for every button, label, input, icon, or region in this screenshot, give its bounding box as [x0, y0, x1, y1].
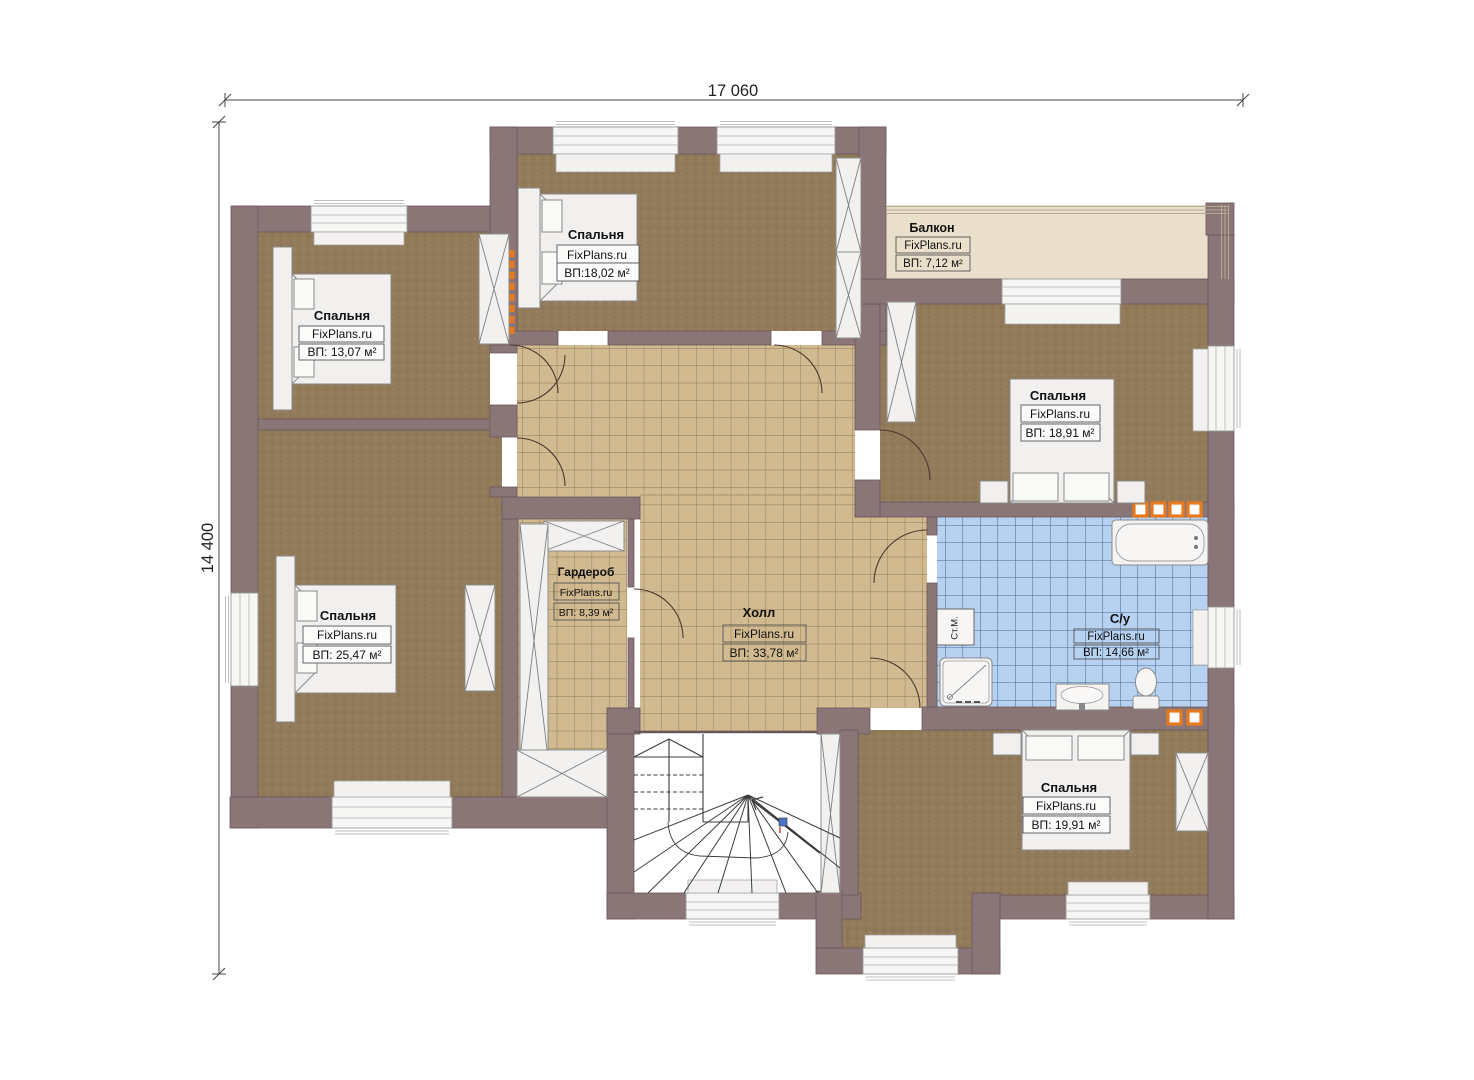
svg-text:14 400: 14 400 [199, 523, 217, 573]
svg-text:FixPlans.ru: FixPlans.ru [312, 327, 372, 341]
svg-text:Спальня: Спальня [1030, 388, 1086, 403]
svg-text:FixPlans.ru: FixPlans.ru [560, 587, 613, 599]
svg-text:Балкон: Балкон [909, 221, 954, 235]
svg-text:Спальня: Спальня [314, 308, 370, 323]
svg-text:ВП: 25,47 м²: ВП: 25,47 м² [313, 648, 382, 662]
svg-text:FixPlans.ru: FixPlans.ru [1030, 407, 1090, 421]
svg-text:ВП: 33,78 м²: ВП: 33,78 м² [730, 646, 799, 660]
svg-text:ВП: 18,91 м²: ВП: 18,91 м² [1026, 426, 1095, 440]
svg-text:FixPlans.ru: FixPlans.ru [904, 240, 962, 252]
svg-text:ВП: 7,12 м²: ВП: 7,12 м² [903, 258, 963, 270]
svg-text:ВП: 8,39 м²: ВП: 8,39 м² [559, 607, 614, 619]
svg-text:Холл: Холл [743, 605, 776, 620]
svg-text:ВП: 19,91 м²: ВП: 19,91 м² [1032, 818, 1101, 832]
svg-text:ВП:18,02 м²: ВП:18,02 м² [564, 266, 630, 280]
svg-text:Спальня: Спальня [1041, 780, 1097, 795]
svg-text:ВП: 14,66 м²: ВП: 14,66 м² [1083, 647, 1149, 659]
svg-text:С/у: С/у [1110, 611, 1131, 626]
svg-text:FixPlans.ru: FixPlans.ru [1087, 631, 1145, 643]
svg-text:Спальня: Спальня [320, 608, 376, 623]
svg-text:FixPlans.ru: FixPlans.ru [317, 628, 377, 642]
svg-text:ВП: 13,07 м²: ВП: 13,07 м² [308, 345, 377, 359]
svg-text:Ст.М.: Ст.М. [950, 616, 961, 639]
svg-text:FixPlans.ru: FixPlans.ru [734, 627, 794, 641]
svg-text:17 060: 17 060 [708, 82, 758, 100]
svg-text:Гардероб: Гардероб [558, 565, 615, 579]
svg-text:FixPlans.ru: FixPlans.ru [567, 248, 627, 262]
svg-text:FixPlans.ru: FixPlans.ru [1036, 799, 1096, 813]
svg-text:Спальня: Спальня [568, 227, 624, 242]
